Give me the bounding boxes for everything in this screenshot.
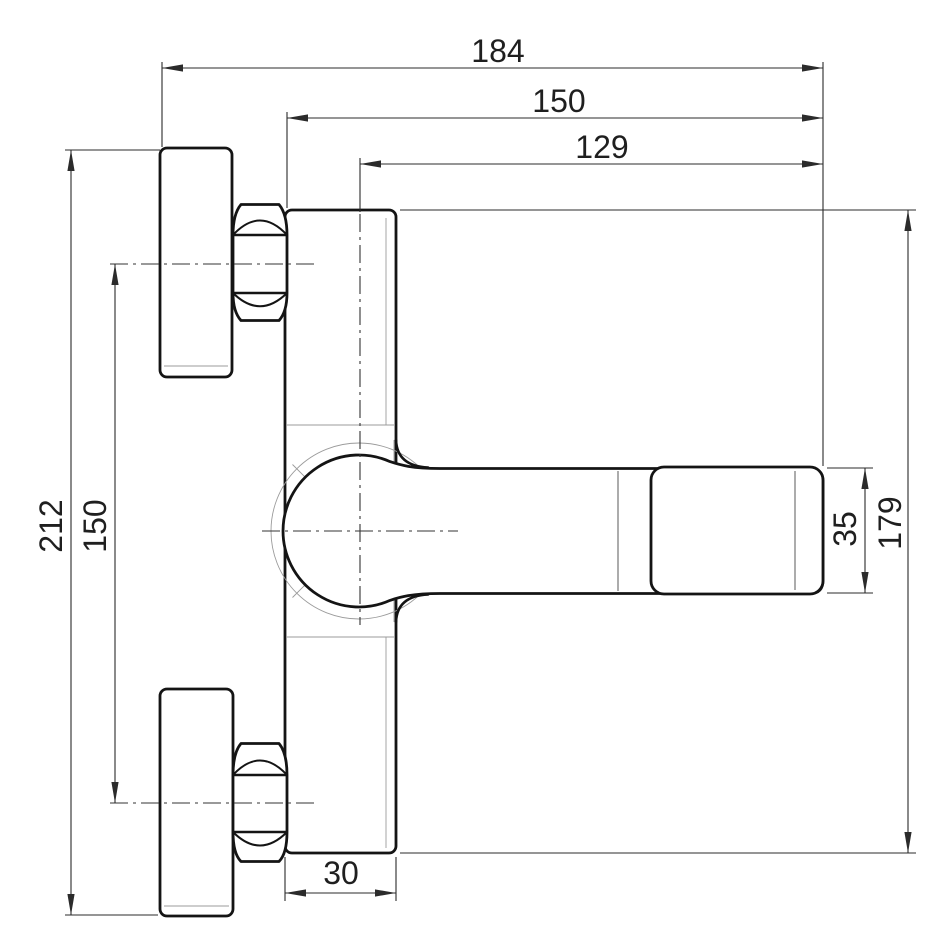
dimension-150-top: 150	[287, 83, 823, 208]
dim-184-label: 184	[471, 33, 524, 69]
arrowhead	[162, 64, 183, 71]
arrowhead	[111, 782, 118, 803]
dim-150-left-label: 150	[77, 499, 113, 552]
arrowhead	[375, 889, 396, 896]
upper-hex-nut	[233, 205, 287, 321]
arrowhead	[802, 160, 823, 167]
faucet-body	[160, 148, 823, 916]
dimension-30: 30	[285, 855, 396, 901]
technical-drawing-canvas: 184 150 129 212 150 35	[0, 0, 946, 945]
upper-wall-flange	[160, 148, 232, 377]
arrowhead	[802, 64, 823, 71]
arrowhead	[904, 210, 911, 231]
dim-129-label: 129	[575, 129, 628, 165]
mixer-dimension-drawing: 184 150 129 212 150 35	[0, 0, 946, 945]
dimension-150-left: 150	[77, 264, 119, 803]
arrowhead	[287, 114, 308, 121]
arrowhead	[111, 264, 118, 285]
dim-150-top-label: 150	[532, 83, 585, 119]
arrowhead	[67, 894, 74, 915]
arrowhead	[802, 114, 823, 121]
dim-30-label: 30	[323, 855, 359, 891]
arrowhead	[285, 889, 306, 896]
arrowhead	[861, 468, 868, 489]
dimension-129: 129	[360, 129, 823, 212]
dimension-35: 35	[827, 468, 873, 593]
arrowhead	[904, 832, 911, 853]
dim-35-label: 35	[827, 511, 863, 547]
upper-nut-outline	[233, 205, 287, 321]
arrowhead	[360, 160, 381, 167]
dim-179-label: 179	[872, 496, 908, 549]
dim-212-label: 212	[33, 499, 69, 552]
arrowhead	[861, 572, 868, 593]
arrowhead	[67, 150, 74, 171]
lever-grip	[651, 467, 823, 594]
